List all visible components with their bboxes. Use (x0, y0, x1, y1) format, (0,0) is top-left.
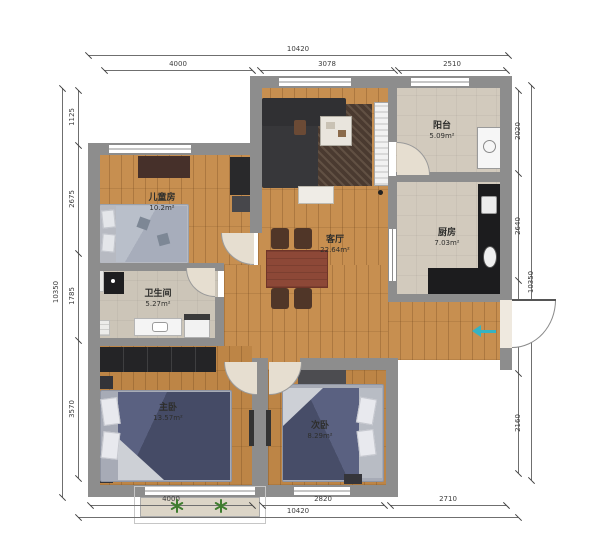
children-pillow (101, 209, 116, 228)
entry-door-leaf (512, 299, 556, 301)
dim-label-top-seg1: 4000 (166, 61, 190, 68)
bedroom-door-leaf (249, 410, 254, 446)
room-name: 阳台 (412, 118, 472, 131)
dim-line-bottom-seg2 (262, 505, 384, 506)
master-pillow (100, 397, 121, 426)
room-area: 10.2m² (132, 204, 192, 212)
entry-arrow-tail (481, 330, 496, 333)
dim-label-right-seg4: 2160 (511, 408, 525, 438)
children-rug (138, 156, 190, 178)
radiator-valve (378, 190, 383, 195)
bedroom-door-leaf (266, 410, 271, 446)
dining-table (266, 250, 328, 288)
room-label-kitchen: 厨房 7.03m² (417, 225, 477, 247)
wall-second-right (386, 358, 398, 497)
dim-label-top-seg2: 3078 (315, 61, 339, 68)
room-area: 5.27m² (128, 300, 188, 308)
entry-arrow-icon (472, 325, 481, 337)
dim-label-top-total: 10420 (283, 46, 313, 53)
sofa-cushion (294, 120, 306, 135)
wall-right-lower (500, 348, 512, 370)
dim-label-bottom-seg2: 2820 (311, 496, 335, 503)
children-window (108, 144, 192, 154)
dim-line-top-seg3 (398, 70, 506, 71)
dim-label-bottom-total: 10420 (283, 508, 313, 515)
kitchen-stove (481, 196, 497, 214)
room-name: 厨房 (417, 225, 477, 238)
dining-chair (271, 288, 289, 309)
washing-machine-door (483, 140, 496, 153)
room-area: 8.29m² (290, 432, 350, 440)
radiator (374, 102, 389, 186)
wall-living-children (250, 88, 262, 233)
room-area: 13.57m² (138, 414, 198, 422)
room-label-bathroom: 卫生间 5.27m² (128, 286, 188, 308)
second-pillow (356, 429, 376, 457)
room-label-master: 主卧 13.57m² (138, 400, 198, 422)
room-area: 5.09m² (412, 132, 472, 140)
dim-label-right-seg1: 2020 (511, 116, 525, 146)
dining-chair (294, 288, 312, 309)
dim-label-bottom-seg3: 2710 (436, 496, 460, 503)
children-duvet (116, 206, 187, 262)
dim-line-bottom-seg3 (390, 505, 506, 506)
coffee-table-item (326, 122, 335, 129)
room-name: 主卧 (138, 400, 198, 413)
dim-line-bottom-total (78, 517, 518, 518)
wall-kitchen-left-upper (388, 176, 397, 228)
bay-floor (140, 497, 260, 517)
master-wardrobe (99, 347, 216, 372)
room-name: 次卧 (290, 418, 350, 431)
room-label-living: 客厅 22.64m² (305, 232, 365, 254)
children-pillow (101, 233, 116, 252)
shower-unit (104, 272, 124, 294)
dim-line-top-seg2 (260, 70, 394, 71)
wall-bathroom-bottom (88, 338, 224, 346)
room-area: 22.64m² (305, 246, 365, 254)
dim-label-top-seg3: 2510 (440, 61, 464, 68)
wall-kitchen-bottom (388, 294, 508, 302)
dim-label-left-total: 10350 (49, 277, 63, 307)
plant-icon (170, 499, 184, 513)
shower-dot (111, 279, 115, 283)
dim-label-right-seg2: 2640 (511, 211, 525, 241)
plant-icon (214, 499, 228, 513)
toilet-washer-top (184, 314, 210, 320)
second-bench (298, 368, 346, 384)
room-label-second: 次卧 8.29m² (290, 418, 350, 440)
vanity-basin (152, 322, 168, 332)
kitchen-counter-bottom (428, 268, 501, 294)
room-area: 7.03m² (417, 239, 477, 247)
coffee-table (320, 116, 352, 146)
entry-door-arc (512, 300, 556, 348)
room-name: 儿童房 (132, 190, 192, 203)
room-name: 客厅 (305, 232, 365, 245)
dim-line-top-total (88, 55, 508, 56)
master-pillow (101, 431, 121, 460)
nightstand (344, 474, 362, 484)
room-label-children: 儿童房 10.2m² (132, 190, 192, 212)
wall-right-upper (500, 76, 512, 300)
dim-line-top-seg1 (104, 70, 252, 71)
kitchen-sink (483, 246, 497, 268)
dim-label-left-seg4: 3570 (65, 394, 79, 424)
side-table (298, 186, 334, 204)
coffee-table-item (338, 130, 346, 137)
wall-left (88, 143, 100, 497)
dim-label-right-total: 10350 (524, 267, 538, 297)
dim-label-left-seg1: 1125 (65, 102, 79, 132)
dim-label-left-seg3: 1785 (65, 281, 79, 311)
room-label-balcony: 阳台 5.09m² (412, 118, 472, 140)
wall-bathroom-right-upper (215, 263, 224, 270)
wall-living-balcony (388, 88, 397, 142)
room-name: 卫生间 (128, 286, 188, 299)
balcony-window (410, 77, 470, 87)
dining-chair (271, 228, 289, 249)
living-window (278, 77, 352, 87)
dim-label-left-seg2: 2675 (65, 184, 79, 214)
floor-plan: 儿童房 10.2m² 卫生间 5.27m² 客厅 22.64m² 阳台 5.09… (0, 0, 600, 557)
kitchen-sliding-door (388, 228, 397, 282)
wall-hall-bedroom (300, 358, 398, 370)
